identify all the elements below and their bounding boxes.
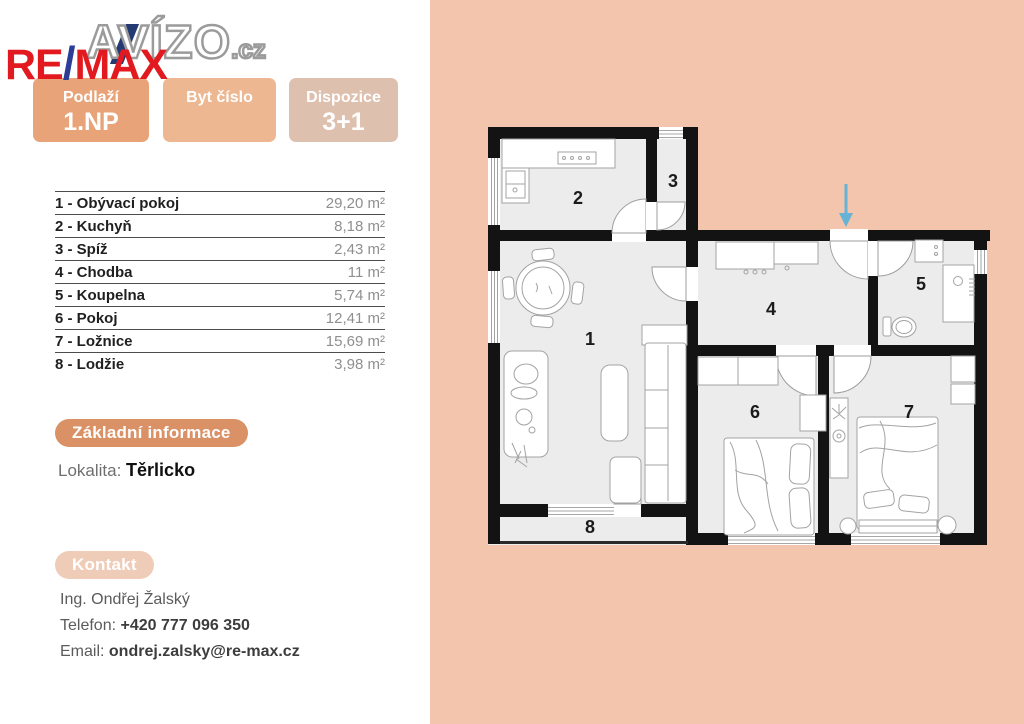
- remax-re: RE: [5, 41, 63, 89]
- remax-logo: RE/MAX: [5, 40, 167, 87]
- room-label-3: 3: [668, 171, 678, 191]
- remax-max: MAX: [75, 41, 168, 89]
- room-label-5: 5: [916, 274, 926, 294]
- shelf-unit: [504, 351, 548, 467]
- room-label-6: 6: [750, 402, 760, 422]
- entrance-arrow-icon: [839, 184, 853, 227]
- coffee-table: [601, 365, 628, 441]
- flyer: AVÍZO.cz RE/MAX Podlaží 1.NP Byt číslo D…: [0, 0, 1024, 724]
- room-label-2: 2: [573, 188, 583, 208]
- avizo-logo-tld: .cz: [231, 34, 266, 64]
- floorplan: 1 2 3 4 5 6 7 8: [0, 0, 1024, 724]
- room-label-1: 1: [585, 329, 595, 349]
- remax-slash: /: [63, 37, 75, 89]
- room-label-7: 7: [904, 402, 914, 422]
- room-label-4: 4: [766, 299, 776, 319]
- room-label-8: 8: [585, 517, 595, 537]
